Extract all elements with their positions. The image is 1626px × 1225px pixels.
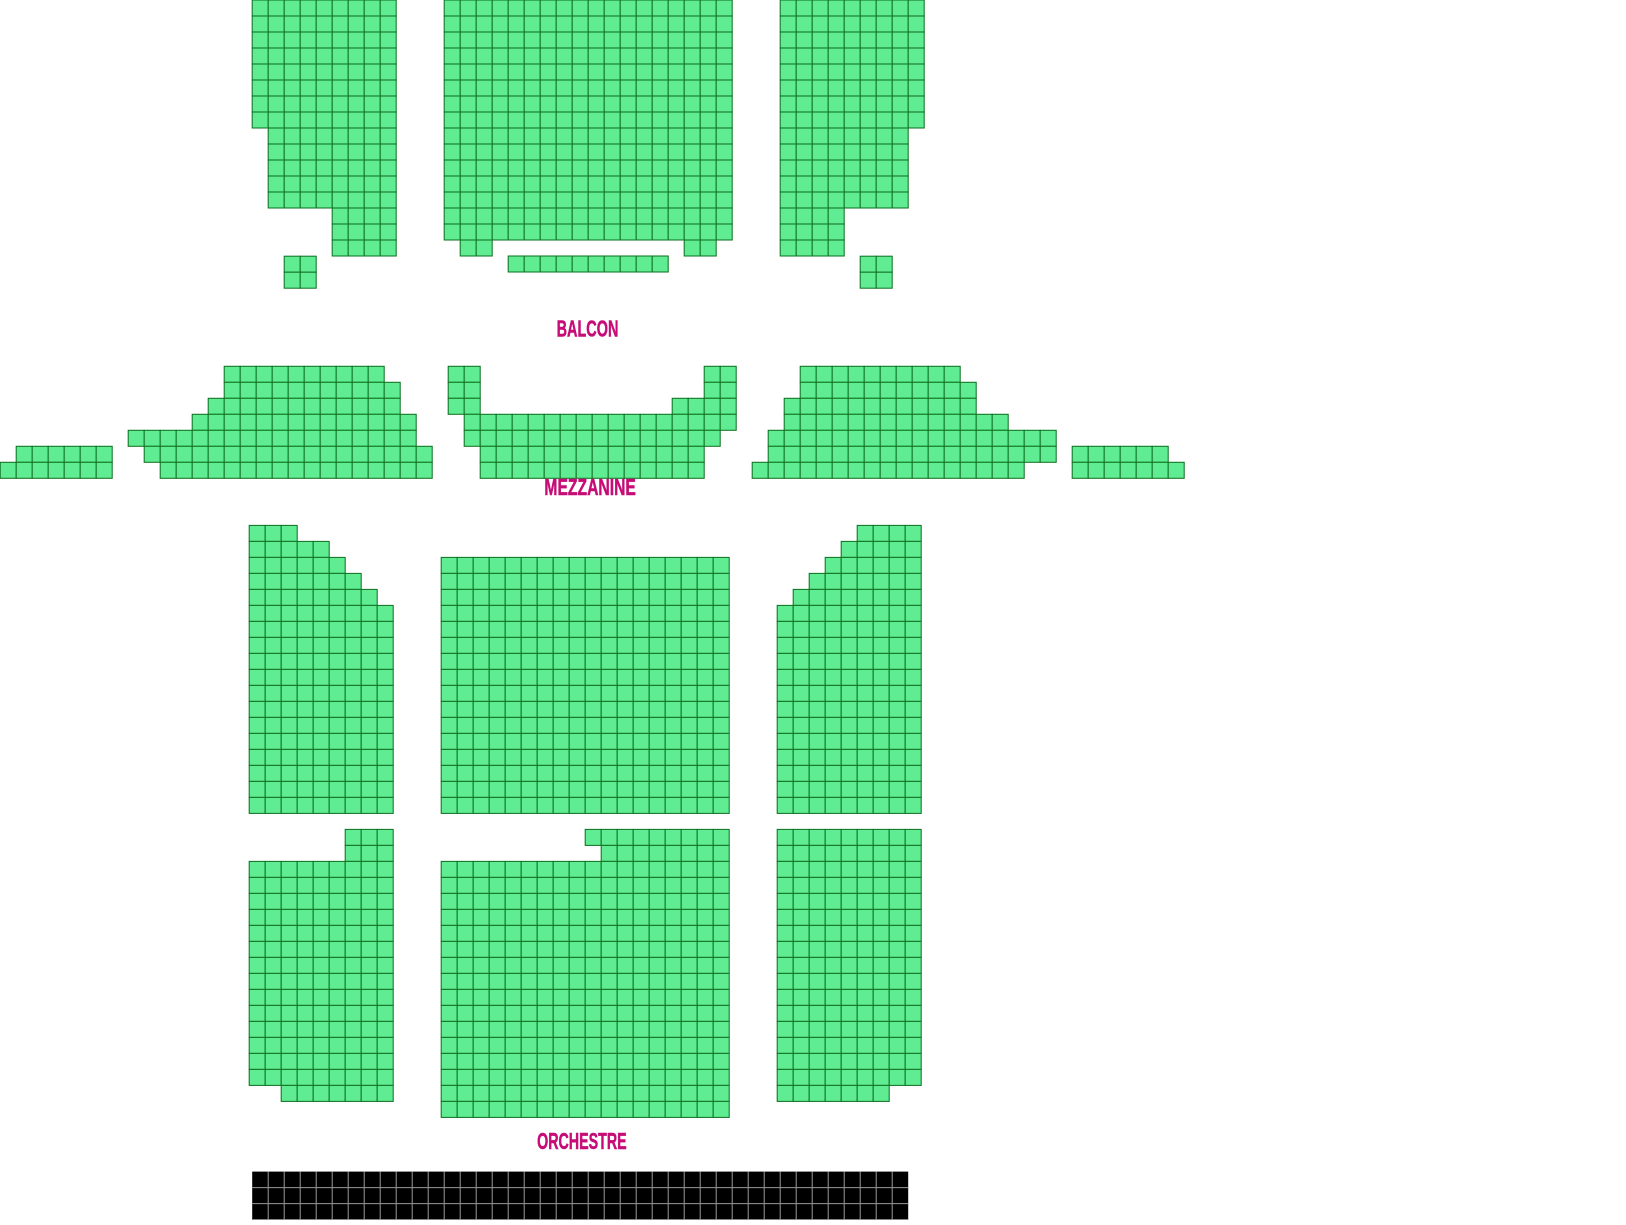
svg-text:MEZZANINE: MEZZANINE [544, 474, 636, 500]
svg-text:BALCON: BALCON [557, 316, 619, 342]
svg-text:ORCHESTRE: ORCHESTRE [537, 1128, 627, 1154]
